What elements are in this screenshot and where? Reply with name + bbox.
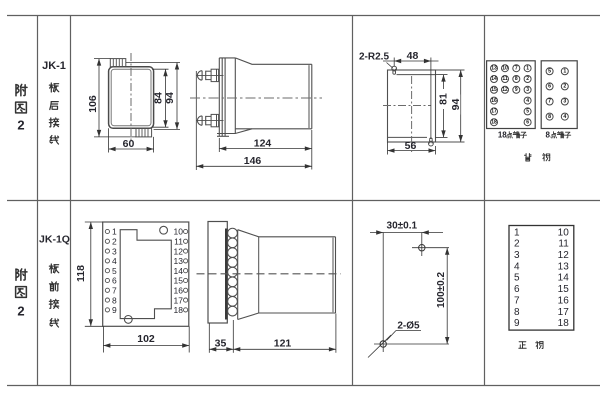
svg-text:15: 15 bbox=[174, 276, 184, 286]
svg-text:14: 14 bbox=[491, 76, 497, 82]
svg-text:3: 3 bbox=[514, 250, 520, 261]
svg-text:5: 5 bbox=[514, 273, 520, 284]
svg-text:5: 5 bbox=[548, 69, 551, 75]
svg-text:106: 106 bbox=[87, 95, 99, 113]
svg-text:2: 2 bbox=[563, 84, 566, 90]
svg-text:35: 35 bbox=[215, 337, 227, 349]
svg-text:12: 12 bbox=[502, 87, 508, 93]
svg-text:18: 18 bbox=[498, 130, 507, 139]
svg-text:100±0.2: 100±0.2 bbox=[436, 272, 447, 309]
svg-text:30±0.1: 30±0.1 bbox=[387, 220, 418, 231]
svg-text:6: 6 bbox=[112, 276, 117, 286]
svg-text:10: 10 bbox=[558, 227, 570, 238]
svg-text:2: 2 bbox=[514, 239, 520, 250]
svg-text:4: 4 bbox=[514, 261, 520, 272]
svg-text:JK-1: JK-1 bbox=[42, 60, 66, 72]
svg-text:8: 8 bbox=[515, 76, 518, 82]
svg-text:9: 9 bbox=[112, 305, 117, 315]
svg-text:1: 1 bbox=[526, 65, 529, 71]
svg-text:1: 1 bbox=[112, 227, 117, 237]
svg-text:16: 16 bbox=[491, 98, 497, 104]
svg-text:1: 1 bbox=[563, 69, 566, 75]
svg-text:2-Ø5: 2-Ø5 bbox=[397, 321, 420, 332]
svg-text:9: 9 bbox=[514, 318, 520, 329]
svg-text:18: 18 bbox=[174, 305, 184, 315]
svg-text:8: 8 bbox=[548, 114, 551, 120]
svg-text:11: 11 bbox=[502, 76, 508, 82]
svg-text:48: 48 bbox=[407, 50, 419, 62]
svg-text:94: 94 bbox=[164, 92, 176, 104]
svg-text:15: 15 bbox=[491, 87, 497, 93]
svg-text:18: 18 bbox=[491, 119, 497, 125]
svg-text:13: 13 bbox=[491, 65, 497, 71]
svg-text:8: 8 bbox=[112, 295, 117, 305]
svg-text:118: 118 bbox=[75, 265, 87, 282]
svg-text:5: 5 bbox=[112, 266, 117, 276]
svg-text:7: 7 bbox=[112, 286, 117, 296]
svg-text:17: 17 bbox=[558, 307, 570, 318]
svg-text:4: 4 bbox=[563, 114, 566, 120]
svg-text:146: 146 bbox=[244, 155, 262, 167]
svg-text:16: 16 bbox=[558, 295, 570, 306]
svg-text:7: 7 bbox=[514, 295, 520, 306]
svg-text:2: 2 bbox=[526, 76, 529, 82]
svg-text:5: 5 bbox=[526, 109, 529, 115]
svg-text:12: 12 bbox=[558, 250, 570, 261]
svg-text:6: 6 bbox=[514, 284, 520, 295]
svg-text:JK-1Q: JK-1Q bbox=[39, 234, 70, 246]
svg-text:11: 11 bbox=[558, 239, 569, 250]
svg-text:7: 7 bbox=[548, 99, 551, 105]
svg-text:102: 102 bbox=[137, 333, 155, 345]
svg-text:6: 6 bbox=[548, 84, 551, 90]
svg-text:8: 8 bbox=[545, 130, 550, 139]
svg-text:18: 18 bbox=[558, 318, 570, 329]
svg-text:121: 121 bbox=[274, 338, 292, 350]
svg-text:12: 12 bbox=[174, 246, 184, 256]
svg-text:6: 6 bbox=[526, 119, 529, 125]
svg-text:3: 3 bbox=[112, 246, 117, 256]
svg-text:4: 4 bbox=[112, 256, 117, 266]
svg-text:14: 14 bbox=[558, 273, 570, 284]
svg-text:94: 94 bbox=[450, 99, 462, 111]
svg-text:84: 84 bbox=[153, 92, 165, 104]
svg-text:3: 3 bbox=[563, 99, 566, 105]
svg-text:3: 3 bbox=[526, 87, 529, 93]
svg-text:13: 13 bbox=[558, 261, 570, 272]
svg-text:56: 56 bbox=[405, 140, 417, 152]
svg-text:16: 16 bbox=[174, 286, 184, 296]
svg-text:10: 10 bbox=[502, 65, 508, 71]
svg-text:81: 81 bbox=[438, 93, 450, 105]
svg-text:14: 14 bbox=[174, 266, 184, 276]
svg-text:4: 4 bbox=[526, 98, 529, 104]
svg-text:10: 10 bbox=[174, 227, 184, 237]
svg-text:124: 124 bbox=[254, 138, 272, 150]
svg-text:13: 13 bbox=[174, 256, 184, 266]
svg-text:17: 17 bbox=[491, 109, 497, 115]
svg-text:2: 2 bbox=[17, 117, 24, 132]
svg-text:17: 17 bbox=[174, 295, 184, 305]
svg-text:8: 8 bbox=[514, 307, 520, 318]
svg-text:1: 1 bbox=[514, 227, 520, 238]
svg-text:7: 7 bbox=[515, 65, 518, 71]
svg-text:11: 11 bbox=[174, 237, 183, 247]
svg-text:2: 2 bbox=[112, 237, 117, 247]
svg-text:60: 60 bbox=[123, 138, 135, 150]
svg-text:2: 2 bbox=[17, 304, 24, 319]
svg-text:9: 9 bbox=[515, 87, 518, 93]
svg-text:2-R2.5: 2-R2.5 bbox=[359, 52, 389, 63]
svg-text:15: 15 bbox=[558, 284, 570, 295]
